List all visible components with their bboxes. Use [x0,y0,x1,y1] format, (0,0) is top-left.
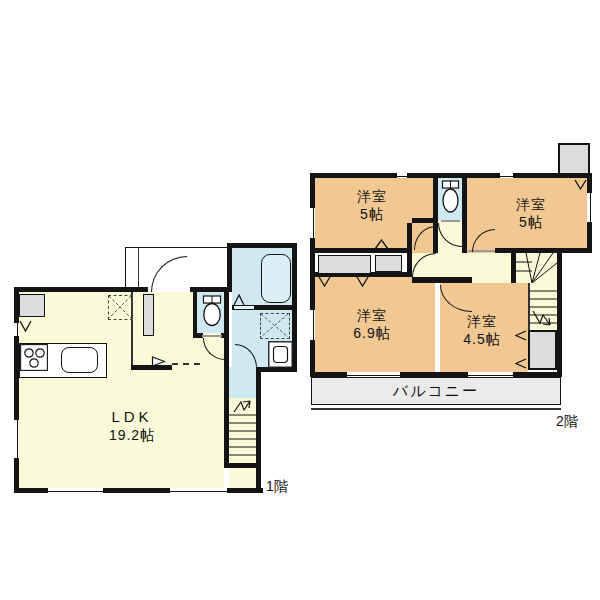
f2-wall-cell-top [412,218,438,223]
stairs2-winder [516,253,557,283]
room-tl-name: 洋室 [330,188,414,206]
floor2-tag: 2階 [556,413,578,431]
f2-wall-toilet-right [462,177,467,253]
f2-wall-b [407,223,412,277]
f2-wall-corridor-bottom [412,277,472,283]
closet-bottom-right [528,330,557,370]
f2-wall-tl-room-bottom [310,248,412,253]
stairs2-treads [529,283,557,330]
room-tr-area: 5帖 [489,214,573,232]
room-br-area: 4.5帖 [440,331,524,349]
toilet-icon [441,180,460,215]
f2-vent-top-2 [500,173,513,178]
room-tr-name: 洋室 [489,196,573,214]
room-br-name: 洋室 [440,313,524,331]
closet-door-mark-up-icon [374,239,389,250]
balcony-outer-line [311,408,561,410]
room-tl-area: 5帖 [330,206,414,224]
closet-fold-mark-2-icon [515,358,527,369]
f2-wall-top [310,173,592,178]
closet-door-mark-down-2-icon [356,276,369,287]
room-tl-label: 洋室 5帖 [330,188,414,223]
window-shutter-mark-icon [574,179,587,190]
closet-small [375,255,402,272]
f2-window-left-1 [310,208,315,238]
balcony-label: バルコニー [393,382,479,401]
balcony: バルコニー [311,377,561,405]
toilet2-door-leaf [441,220,460,222]
f2-window-left-2 [310,310,315,340]
f2-vent-top-1 [397,173,407,178]
room-tr-label: 洋室 5帖 [489,196,573,231]
floorplan-canvas: LDK 19.2帖 1階 バルコニー [0,0,600,600]
closet-left [318,255,371,274]
f2-window-bottom-1 [347,372,400,377]
f2-wall-right-lower [557,253,562,377]
roof-box [558,143,590,175]
room-br-label: 洋室 4.5帖 [440,313,524,348]
room-bl-area: 6.9帖 [330,325,414,343]
f2-window-bottom-2 [468,372,513,377]
room-bl-label: 洋室 6.9帖 [330,307,414,342]
room-bl-name: 洋室 [330,307,414,325]
f2-window-right [587,193,592,222]
floor2-plan: バルコニー [0,0,600,600]
closet-door-mark-down-1-icon [318,276,331,287]
